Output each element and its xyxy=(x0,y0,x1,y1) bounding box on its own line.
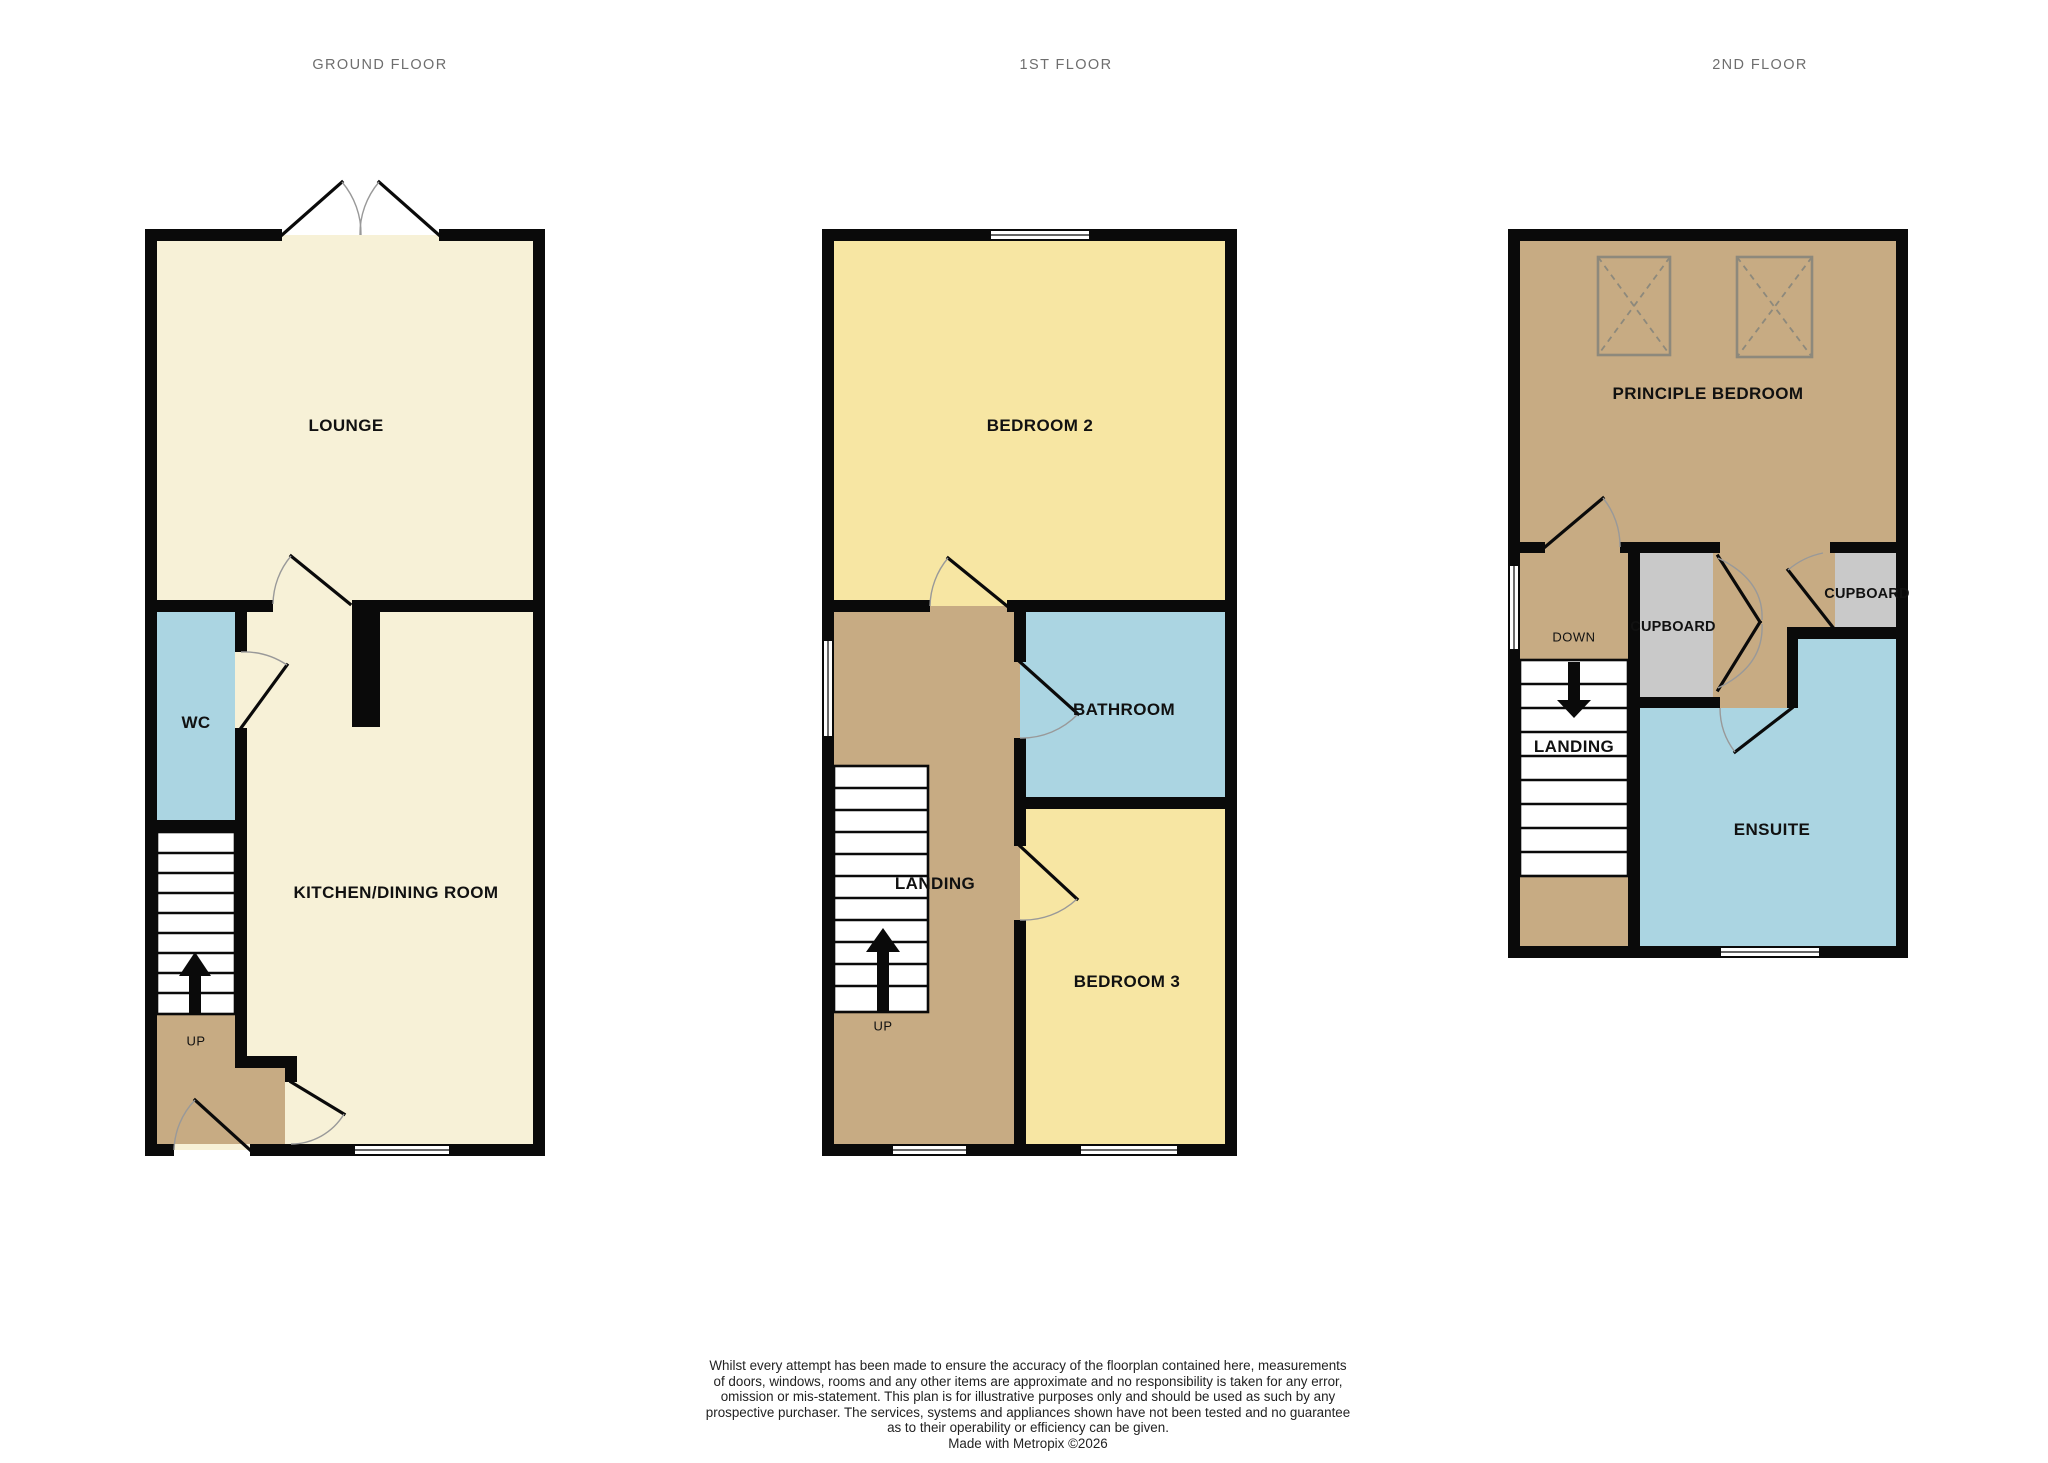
title-first-floor: 1ST FLOOR xyxy=(1020,57,1113,73)
bedroom2-window xyxy=(990,230,1090,240)
stair-label-up-ground: UP xyxy=(186,1034,205,1049)
disclaimer-line: omission or mis-statement. This plan is … xyxy=(528,1389,1528,1405)
bedroom3-window xyxy=(1080,1145,1178,1155)
disclaimer-credit: Made with Metropix ©2026 xyxy=(528,1436,1528,1452)
room-label-lounge: LOUNGE xyxy=(308,416,383,436)
title-second-floor: 2ND FLOOR xyxy=(1712,57,1808,73)
room-label-ensuite: ENSUITE xyxy=(1734,820,1810,840)
entry-hall-lower xyxy=(235,1068,285,1144)
landing-bottom-window xyxy=(892,1145,967,1155)
room-label-landing-second: LANDING xyxy=(1534,737,1614,757)
room-label-landing-first: LANDING xyxy=(895,874,975,894)
room-label-bedroom2: BEDROOM 2 xyxy=(987,416,1094,436)
landing-second-window xyxy=(1509,565,1519,650)
room-label-cupboard-right: CUPBOARD xyxy=(1824,586,1909,602)
stair-label-up-first: UP xyxy=(873,1019,892,1034)
floorplan-canvas: GROUND FLOOR 1ST FLOOR 2ND FLOOR LOUNGE … xyxy=(0,0,2048,1463)
skylight-window xyxy=(1737,257,1812,357)
disclaimer-line: Whilst every attempt has been made to en… xyxy=(528,1358,1528,1374)
room-label-principle-bedroom: PRINCIPLE BEDROOM xyxy=(1613,384,1804,404)
ensuite-window xyxy=(1720,947,1820,957)
room-label-kitchen: KITCHEN/DINING ROOM xyxy=(294,883,499,903)
disclaimer-text: Whilst every attempt has been made to en… xyxy=(528,1358,1528,1452)
landing-window xyxy=(823,640,833,737)
kitchen-window xyxy=(354,1145,450,1155)
room-label-wc: WC xyxy=(181,713,210,733)
skylight-window xyxy=(1598,257,1670,355)
kitchen-pillar xyxy=(352,612,380,727)
room-label-bathroom: BATHROOM xyxy=(1073,700,1175,720)
floorplan-drawing xyxy=(0,0,2048,1463)
disclaimer-line: prospective purchaser. The services, sys… xyxy=(528,1405,1528,1421)
room-label-bedroom3: BEDROOM 3 xyxy=(1074,972,1181,992)
first-floor-plan xyxy=(822,229,1237,1156)
disclaimer-line: of doors, windows, rooms and any other i… xyxy=(528,1374,1528,1390)
stair-label-down-second: DOWN xyxy=(1552,630,1595,645)
title-ground-floor: GROUND FLOOR xyxy=(312,57,447,73)
disclaimer-line: as to their operability or efficiency ca… xyxy=(528,1420,1528,1436)
ground-floor-plan xyxy=(145,182,545,1156)
room-label-cupboard-mid: CUPBOARD xyxy=(1630,619,1715,635)
french-doors xyxy=(282,182,439,235)
